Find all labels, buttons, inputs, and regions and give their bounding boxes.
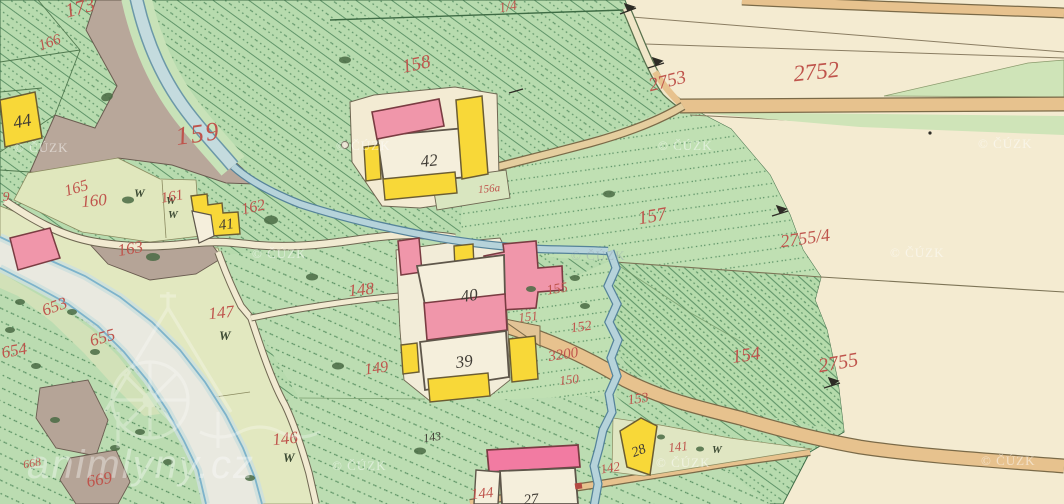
svg-text:39: 39	[453, 351, 474, 372]
svg-text:© ČÚZK: © ČÚZK	[571, 248, 626, 263]
svg-text:© ČÚZK: © ČÚZK	[336, 138, 391, 153]
svg-text:© ČÚZK: © ČÚZK	[656, 455, 711, 470]
svg-text:156a: 156a	[478, 182, 501, 196]
svg-text:W: W	[712, 444, 723, 456]
svg-text:animlyny.cz: animlyny.cz	[27, 443, 255, 487]
svg-text:141: 141	[668, 438, 689, 455]
svg-text:160: 160	[81, 190, 109, 211]
svg-text:W: W	[283, 450, 296, 465]
svg-text:© ČÚZK: © ČÚZK	[332, 458, 387, 473]
svg-text:159: 159	[174, 116, 223, 151]
svg-text:150: 150	[559, 371, 580, 388]
svg-text:148: 148	[347, 279, 375, 301]
svg-text:151: 151	[518, 308, 539, 325]
svg-text:© ČÚZK: © ČÚZK	[14, 140, 69, 155]
svg-text:42: 42	[420, 150, 439, 171]
svg-text:147: 147	[207, 302, 236, 324]
svg-text:W: W	[168, 209, 179, 221]
svg-text:152: 152	[570, 319, 593, 337]
svg-text:154: 154	[731, 343, 763, 368]
svg-text:143: 143	[422, 429, 442, 445]
svg-text:© ČÚZK: © ČÚZK	[252, 246, 307, 261]
svg-text:144: 144	[470, 485, 495, 503]
svg-text:9: 9	[3, 190, 10, 205]
svg-text:© ČÚZK: © ČÚZK	[658, 138, 713, 153]
svg-text:2752: 2752	[792, 57, 840, 87]
svg-text:W: W	[219, 328, 232, 343]
svg-text:41: 41	[218, 216, 235, 234]
svg-text:© ČÚZK: © ČÚZK	[890, 245, 945, 260]
svg-text:40: 40	[459, 285, 479, 306]
svg-text:© ČÚZK: © ČÚZK	[981, 453, 1036, 468]
svg-text:149: 149	[363, 358, 389, 378]
svg-text:44: 44	[12, 110, 33, 133]
svg-text:© ČÚZK: © ČÚZK	[978, 136, 1033, 151]
svg-text:W: W	[134, 186, 146, 200]
svg-text:153: 153	[627, 391, 650, 409]
